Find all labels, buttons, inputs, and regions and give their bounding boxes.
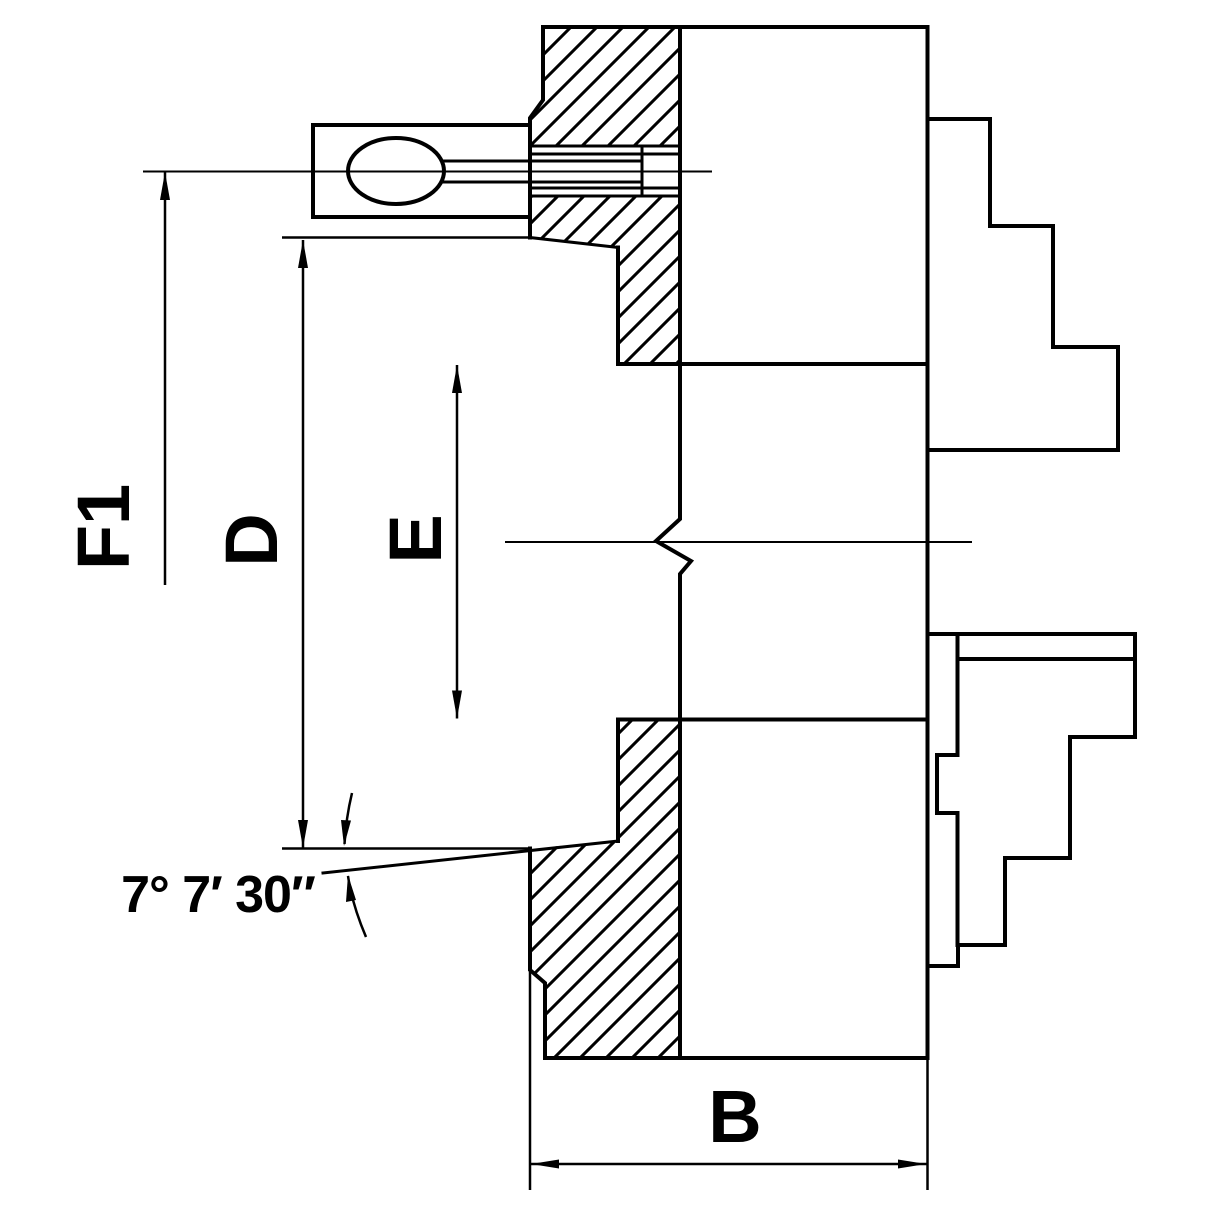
dimension-label-d: D <box>215 513 289 566</box>
dimension-label-f1: F1 <box>67 484 141 570</box>
dimension-label-b: B <box>708 1080 761 1154</box>
dimension-label-e: E <box>379 514 453 563</box>
top-jaw <box>928 119 1119 450</box>
bottom-jaw-guide <box>937 634 958 945</box>
drawing-canvas: F1 D E B 7° 7′ 30″ <box>0 0 1214 1214</box>
dimension-label-taper-angle: 7° 7′ 30″ <box>121 869 315 921</box>
technical-drawing-svg <box>0 0 1214 1214</box>
